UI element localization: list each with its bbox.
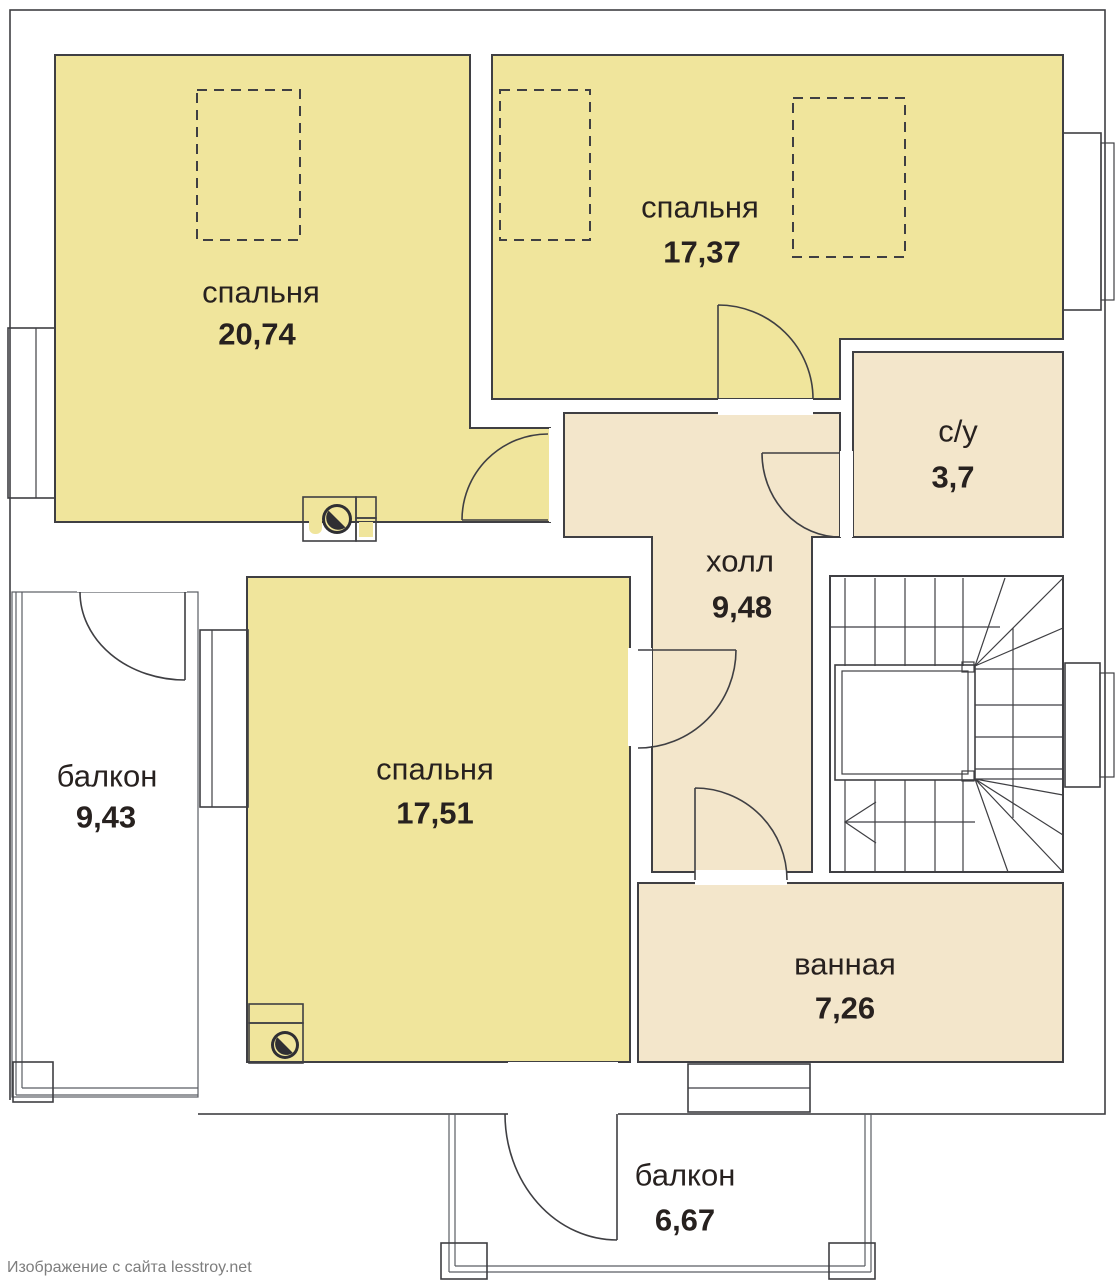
room-label-balcony-bottom: балкон bbox=[635, 1158, 736, 1193]
door-opening-balcony-bottom bbox=[508, 1062, 618, 1116]
door-opening-balcony-left bbox=[77, 524, 187, 592]
door-arc bbox=[505, 1114, 617, 1240]
room-area-bedroom-middle: 17,51 bbox=[396, 796, 474, 831]
window bbox=[200, 630, 248, 807]
room-label-hall: холл bbox=[706, 544, 774, 579]
room-label-bedroom-middle: спальня bbox=[376, 752, 494, 787]
room-label-wc: с/у bbox=[938, 414, 978, 449]
room-bedroom-top-right bbox=[492, 55, 1063, 399]
room-label-bedroom-top-left: спальня bbox=[202, 275, 320, 310]
room-balcony-left bbox=[12, 592, 198, 1097]
room-label-balcony-left: балкон bbox=[57, 759, 158, 794]
door-opening-wc bbox=[840, 451, 853, 537]
watermark-text: Изображение с сайта lesstroy.net bbox=[7, 1259, 252, 1276]
balcony-left-railing bbox=[16, 592, 198, 1095]
door-arc bbox=[80, 592, 185, 680]
room-area-balcony-left: 9,43 bbox=[76, 800, 136, 835]
window bbox=[688, 1064, 810, 1112]
floor-plan-drawing: спальня 20,74 спальня 17,37 с/у 3,7 холл… bbox=[0, 0, 1116, 1286]
balcony-bottom-railing bbox=[449, 1114, 871, 1272]
room-area-wc: 3,7 bbox=[931, 460, 974, 495]
door-opening-bathroom bbox=[695, 870, 787, 885]
room-label-bedroom-top-right: спальня bbox=[641, 190, 759, 225]
room-label-bathroom: ванная bbox=[794, 947, 896, 982]
balcony-bottom-pillar-right bbox=[829, 1243, 875, 1279]
room-area-bathroom: 7,26 bbox=[815, 991, 875, 1026]
floor-plan: спальня 20,74 спальня 17,37 с/у 3,7 холл… bbox=[0, 0, 1116, 1286]
room-area-balcony-bottom: 6,67 bbox=[655, 1203, 715, 1238]
room-area-bedroom-top-right: 17,37 bbox=[663, 235, 741, 270]
room-area-hall: 9,48 bbox=[712, 590, 772, 625]
room-area-bedroom-top-left: 20,74 bbox=[218, 317, 296, 352]
door-opening-bedroom-top-left bbox=[549, 428, 563, 522]
balcony-bottom-pillar-left bbox=[441, 1243, 487, 1279]
door-opening-bedroom-middle bbox=[628, 648, 652, 746]
door-opening-bedroom-top-right bbox=[718, 399, 813, 415]
window bbox=[1063, 133, 1114, 310]
window bbox=[1065, 663, 1114, 787]
balcony-left-pillar bbox=[13, 1062, 53, 1102]
window bbox=[8, 328, 55, 498]
staircase-area bbox=[830, 576, 1063, 872]
